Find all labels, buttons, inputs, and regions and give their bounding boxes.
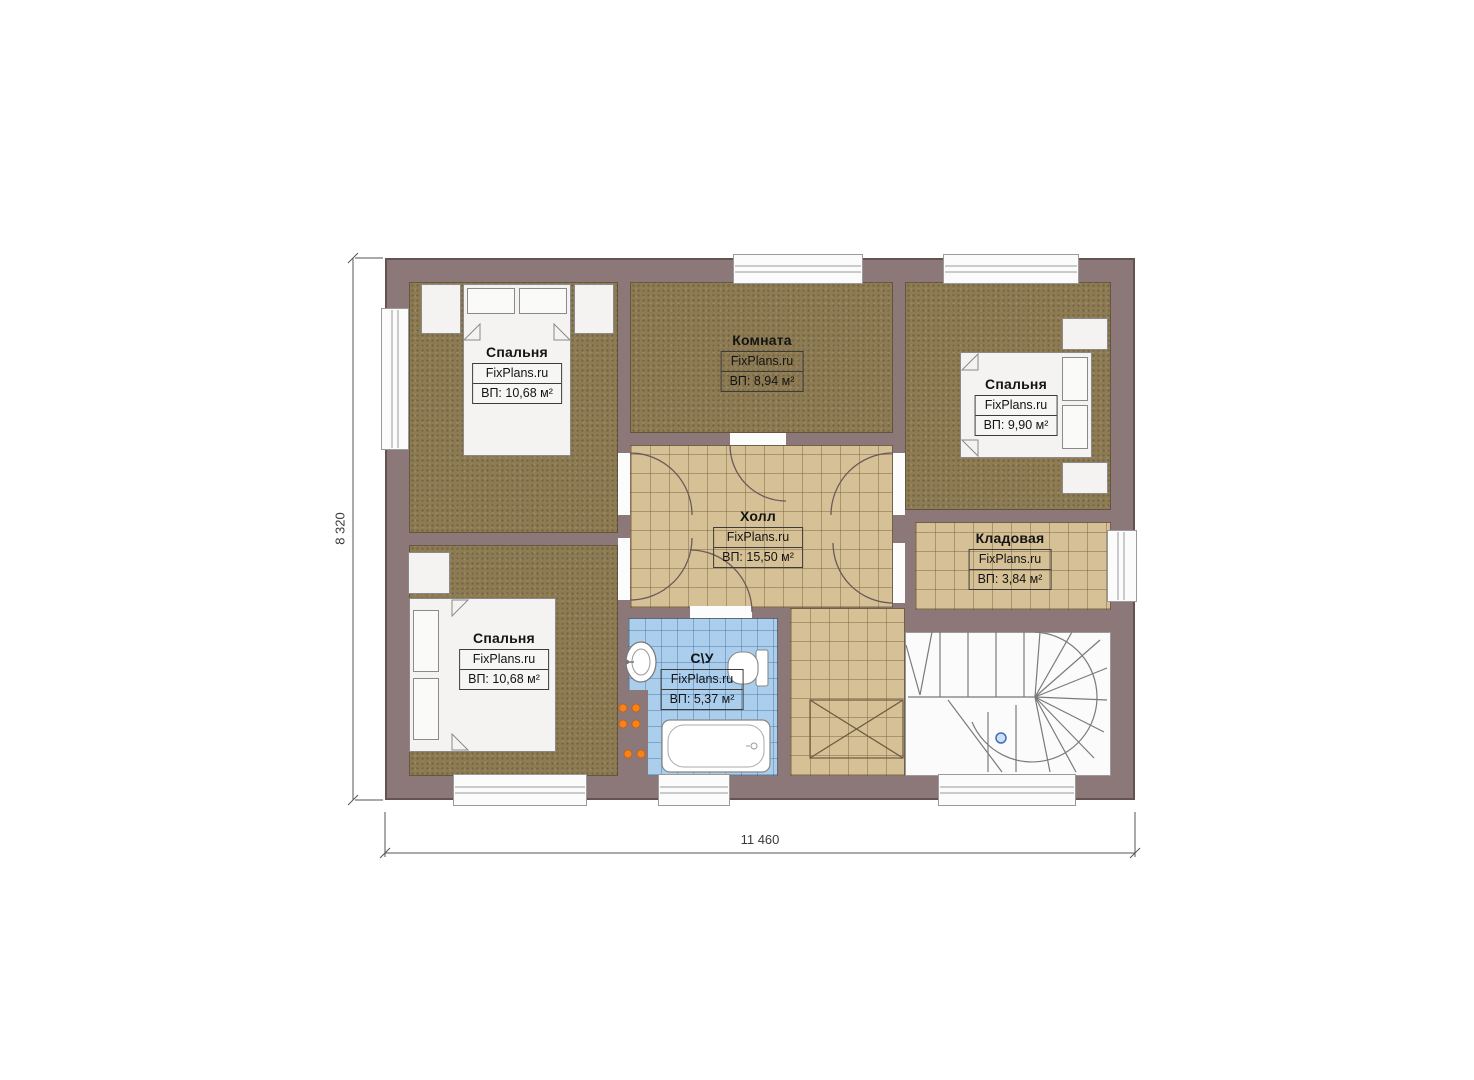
room-area: ВП: 10,68 м² <box>473 384 561 403</box>
door-gap-bedroom-bl <box>618 538 630 600</box>
window-bottom-3 <box>938 774 1076 806</box>
room-label-bathroom: С\У FixPlans.ru ВП: 5,37 м² <box>661 650 744 710</box>
door-gap-room-top <box>730 433 786 445</box>
room-label-room-top: Комната FixPlans.ru ВП: 8,94 м² <box>721 332 804 392</box>
room-label-bedroom-bottom-left: Спальня FixPlans.ru ВП: 10,68 м² <box>459 630 549 690</box>
room-label-bedroom-top-right: Спальня FixPlans.ru ВП: 9,90 м² <box>975 376 1058 436</box>
nightstand <box>574 284 614 334</box>
staircase-area <box>905 632 1111 776</box>
floor-plan-canvas: Спальня FixPlans.ru ВП: 10,68 м² Комната… <box>0 0 1474 1080</box>
watermark-fixplans: FixPlans.ru <box>473 364 561 384</box>
nightstand <box>421 284 461 334</box>
pillow <box>413 610 439 672</box>
room-area: ВП: 15,50 м² <box>714 548 802 567</box>
room-name: Спальня <box>472 344 562 360</box>
watermark-fixplans: FixPlans.ru <box>662 670 743 690</box>
door-gap-storage <box>893 543 905 603</box>
pillow <box>1062 405 1088 449</box>
bathroom-wall-chunk <box>618 690 648 776</box>
nightstand <box>408 552 450 594</box>
room-label-hall: Холл FixPlans.ru ВП: 15,50 м² <box>713 508 803 568</box>
room-area: ВП: 9,90 м² <box>976 416 1057 435</box>
room-area: ВП: 5,37 м² <box>662 690 743 709</box>
window-bottom-1 <box>453 774 587 806</box>
room-area: ВП: 8,94 м² <box>722 372 803 391</box>
window-top-2 <box>943 254 1079 284</box>
pillow <box>519 288 567 314</box>
hall-corridor-floor <box>790 608 905 776</box>
door-gap-bathroom <box>690 606 752 618</box>
watermark-fixplans: FixPlans.ru <box>976 396 1057 416</box>
nightstand <box>1062 318 1108 350</box>
window-bottom-2 <box>658 774 730 806</box>
door-gap-bedroom-tl <box>618 453 630 515</box>
room-area: ВП: 3,84 м² <box>970 570 1051 589</box>
room-label-storage: Кладовая FixPlans.ru ВП: 3,84 м² <box>969 530 1052 590</box>
room-name: Холл <box>713 508 803 524</box>
nightstand <box>1062 462 1108 494</box>
window-left <box>381 308 409 450</box>
dimension-width-label: 11 460 <box>700 832 820 847</box>
dimension-height-label: 8 320 <box>333 499 348 559</box>
watermark-fixplans: FixPlans.ru <box>460 650 548 670</box>
watermark-fixplans: FixPlans.ru <box>970 550 1051 570</box>
window-right <box>1107 530 1137 602</box>
room-name: Комната <box>721 332 804 348</box>
room-area: ВП: 10,68 м² <box>460 670 548 689</box>
room-label-bedroom-top-left: Спальня FixPlans.ru ВП: 10,68 м² <box>472 344 562 404</box>
pillow <box>1062 357 1088 401</box>
door-gap-bedroom-tr <box>893 453 905 515</box>
pillow <box>413 678 439 740</box>
room-name: Кладовая <box>969 530 1052 546</box>
window-top-1 <box>733 254 863 284</box>
watermark-fixplans: FixPlans.ru <box>714 528 802 548</box>
room-name: С\У <box>661 650 744 666</box>
room-name: Спальня <box>459 630 549 646</box>
pillow <box>467 288 515 314</box>
room-name: Спальня <box>975 376 1058 392</box>
watermark-fixplans: FixPlans.ru <box>722 352 803 372</box>
